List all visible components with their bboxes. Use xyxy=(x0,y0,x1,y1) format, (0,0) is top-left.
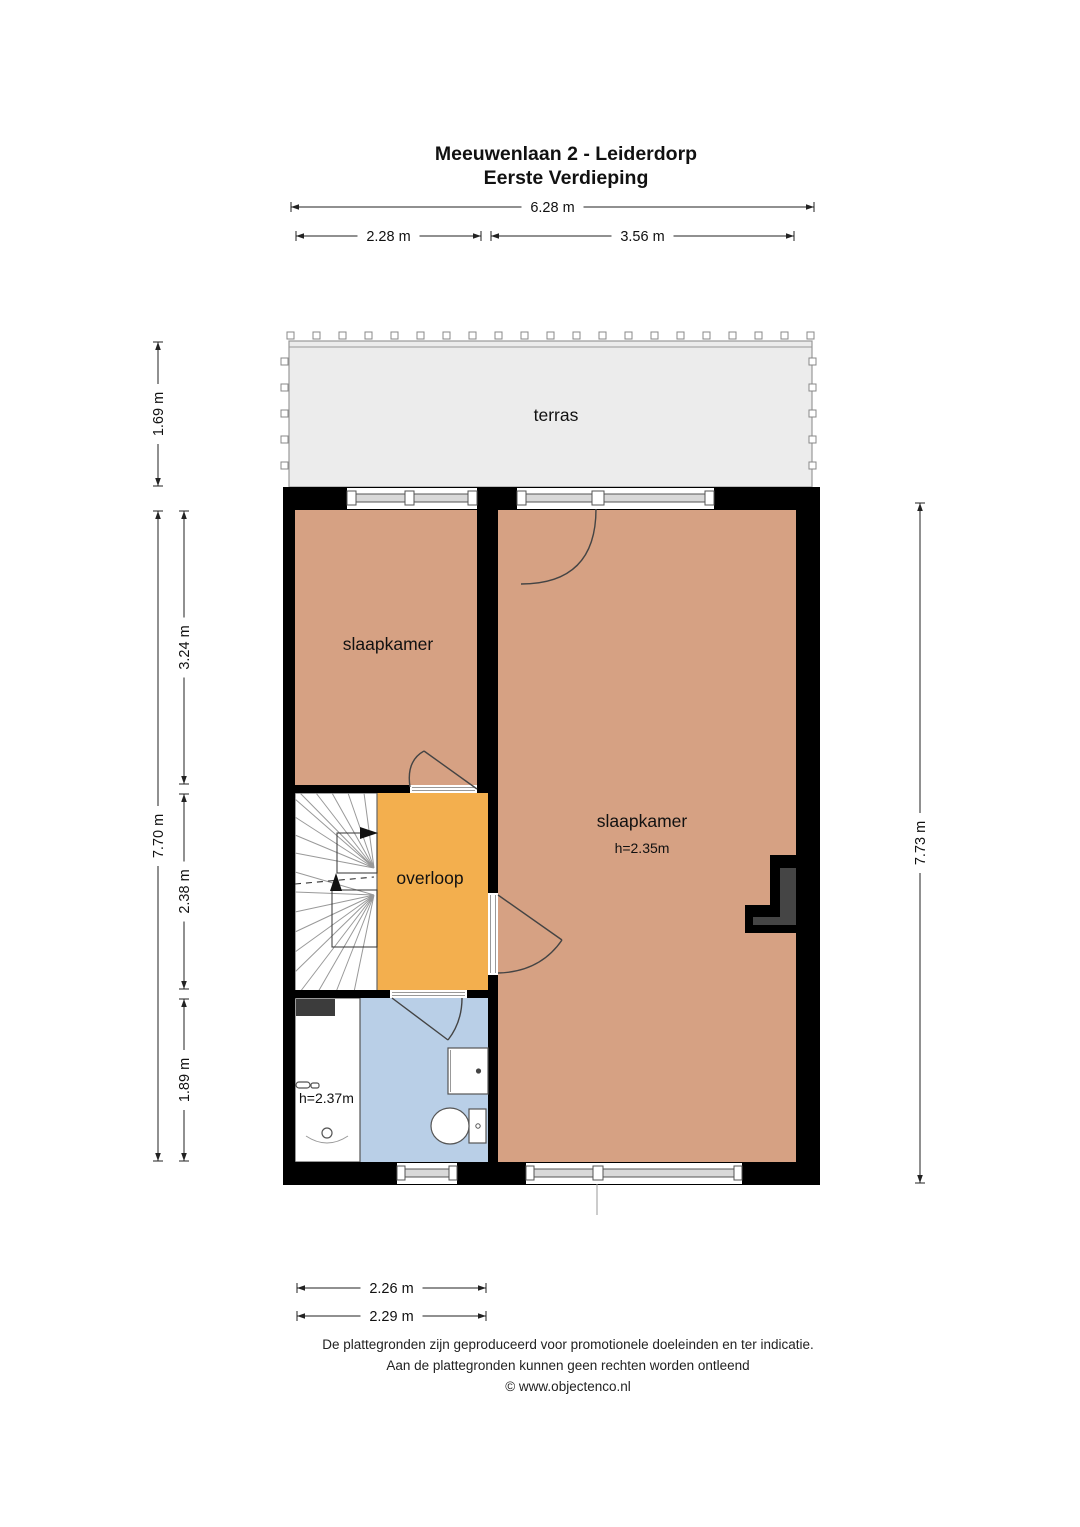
railing-post xyxy=(809,410,816,417)
landing-floor xyxy=(377,793,488,992)
door-opening-landing-bedroom-right xyxy=(488,893,498,975)
window-bedroom-right-bottom xyxy=(526,1163,742,1215)
wall-right xyxy=(796,487,820,1185)
dim-label: 2.28 m xyxy=(366,229,410,245)
terrace-label: terras xyxy=(534,405,579,425)
dim-top_right: 3.56 m xyxy=(491,227,794,245)
toilet-icon xyxy=(431,1108,486,1144)
railing-post xyxy=(573,332,580,339)
railing-post xyxy=(281,462,288,469)
window-bedroom-left-terrace xyxy=(347,488,477,509)
dim-top_left: 2.28 m xyxy=(296,227,481,245)
footer-disclaimer-line2: Aan de plattegronden kunnen geen rechten… xyxy=(386,1358,749,1373)
railing-post xyxy=(729,332,736,339)
dim-top_total: 6.28 m xyxy=(291,198,814,216)
dim-label: 7.70 m xyxy=(151,814,167,858)
railing-post xyxy=(281,384,288,391)
dim-label: 1.89 m xyxy=(177,1058,193,1102)
railing-post xyxy=(391,332,398,339)
window-door-bedroom-right-terrace xyxy=(517,488,714,509)
railing-post xyxy=(287,332,294,339)
railing-post xyxy=(809,384,816,391)
dim-label: 7.73 m xyxy=(913,821,929,865)
railing-post xyxy=(755,332,762,339)
dim-label: 2.29 m xyxy=(369,1309,413,1325)
railing-post xyxy=(703,332,710,339)
railing-post xyxy=(809,462,816,469)
bathroom-height-label: h=2.37m xyxy=(299,1090,354,1106)
duct-shaft xyxy=(296,999,335,1016)
railing-post xyxy=(365,332,372,339)
railing-post xyxy=(281,410,288,417)
dim-label: 1.69 m xyxy=(151,392,167,436)
railing-post xyxy=(443,332,450,339)
dim-bottom_outer: 2.29 m xyxy=(297,1307,486,1325)
page-title-line2: Eerste Verdieping xyxy=(484,167,649,189)
railing-post xyxy=(313,332,320,339)
railing-post xyxy=(809,358,816,365)
railing-post xyxy=(547,332,554,339)
wall-middle-lower xyxy=(488,975,498,1162)
wall-middle-upper xyxy=(477,510,498,785)
bedroom-right-floor xyxy=(498,510,796,1162)
floor-plan-drawing: terras slaapkamer slaapkamer h=2.35m ove… xyxy=(0,0,1080,1527)
page-title-line1: Meeuwenlaan 2 - Leiderdorp xyxy=(435,143,697,165)
dim-label: 2.26 m xyxy=(369,1281,413,1297)
floor-plan-page: terras slaapkamer slaapkamer h=2.35m ove… xyxy=(0,0,1080,1527)
dim-bottom_inner: 2.26 m xyxy=(297,1279,486,1297)
railing-post xyxy=(781,332,788,339)
dim-left_terrace: 1.69 m xyxy=(149,342,167,486)
railing-post xyxy=(521,332,528,339)
window-bathroom xyxy=(397,1163,457,1184)
railing-post xyxy=(809,436,816,443)
door-opening-bedroom-left xyxy=(410,785,477,793)
bedroom-right-label: slaapkamer xyxy=(597,811,688,831)
dim-label: 3.56 m xyxy=(620,229,664,245)
railing-post xyxy=(281,436,288,443)
dim-left_lower: 1.89 m xyxy=(175,999,193,1161)
railing-post xyxy=(339,332,346,339)
railing-post xyxy=(469,332,476,339)
wall-left xyxy=(283,487,295,1185)
railing-post xyxy=(417,332,424,339)
railing-post xyxy=(651,332,658,339)
dim-right_total: 7.73 m xyxy=(911,503,929,1183)
faucet-icon xyxy=(296,1082,319,1088)
footer-disclaimer-line1: De plattegronden zijn geproduceerd voor … xyxy=(322,1337,814,1352)
door-opening-landing-bathroom xyxy=(390,990,467,998)
bedroom-right-height-label: h=2.35m xyxy=(615,840,670,856)
bedroom-left-label: slaapkamer xyxy=(343,634,434,654)
washing-machine-icon xyxy=(448,1048,488,1094)
dim-left_middle: 2.38 m xyxy=(175,794,193,989)
railing-post xyxy=(281,358,288,365)
railing-post xyxy=(677,332,684,339)
wall-middle-landing xyxy=(488,785,498,893)
footer-copyright: © www.objectenco.nl xyxy=(505,1379,631,1394)
railing-post xyxy=(807,332,814,339)
railing-post xyxy=(625,332,632,339)
dim-left_upper: 3.24 m xyxy=(175,511,193,784)
dim-label: 3.24 m xyxy=(177,625,193,669)
railing-post xyxy=(599,332,606,339)
landing-label: overloop xyxy=(396,868,463,888)
dim-label: 2.38 m xyxy=(177,869,193,913)
dim-left_total: 7.70 m xyxy=(149,511,167,1161)
staircase xyxy=(295,793,378,992)
dim-label: 6.28 m xyxy=(530,200,574,216)
railing-post xyxy=(495,332,502,339)
